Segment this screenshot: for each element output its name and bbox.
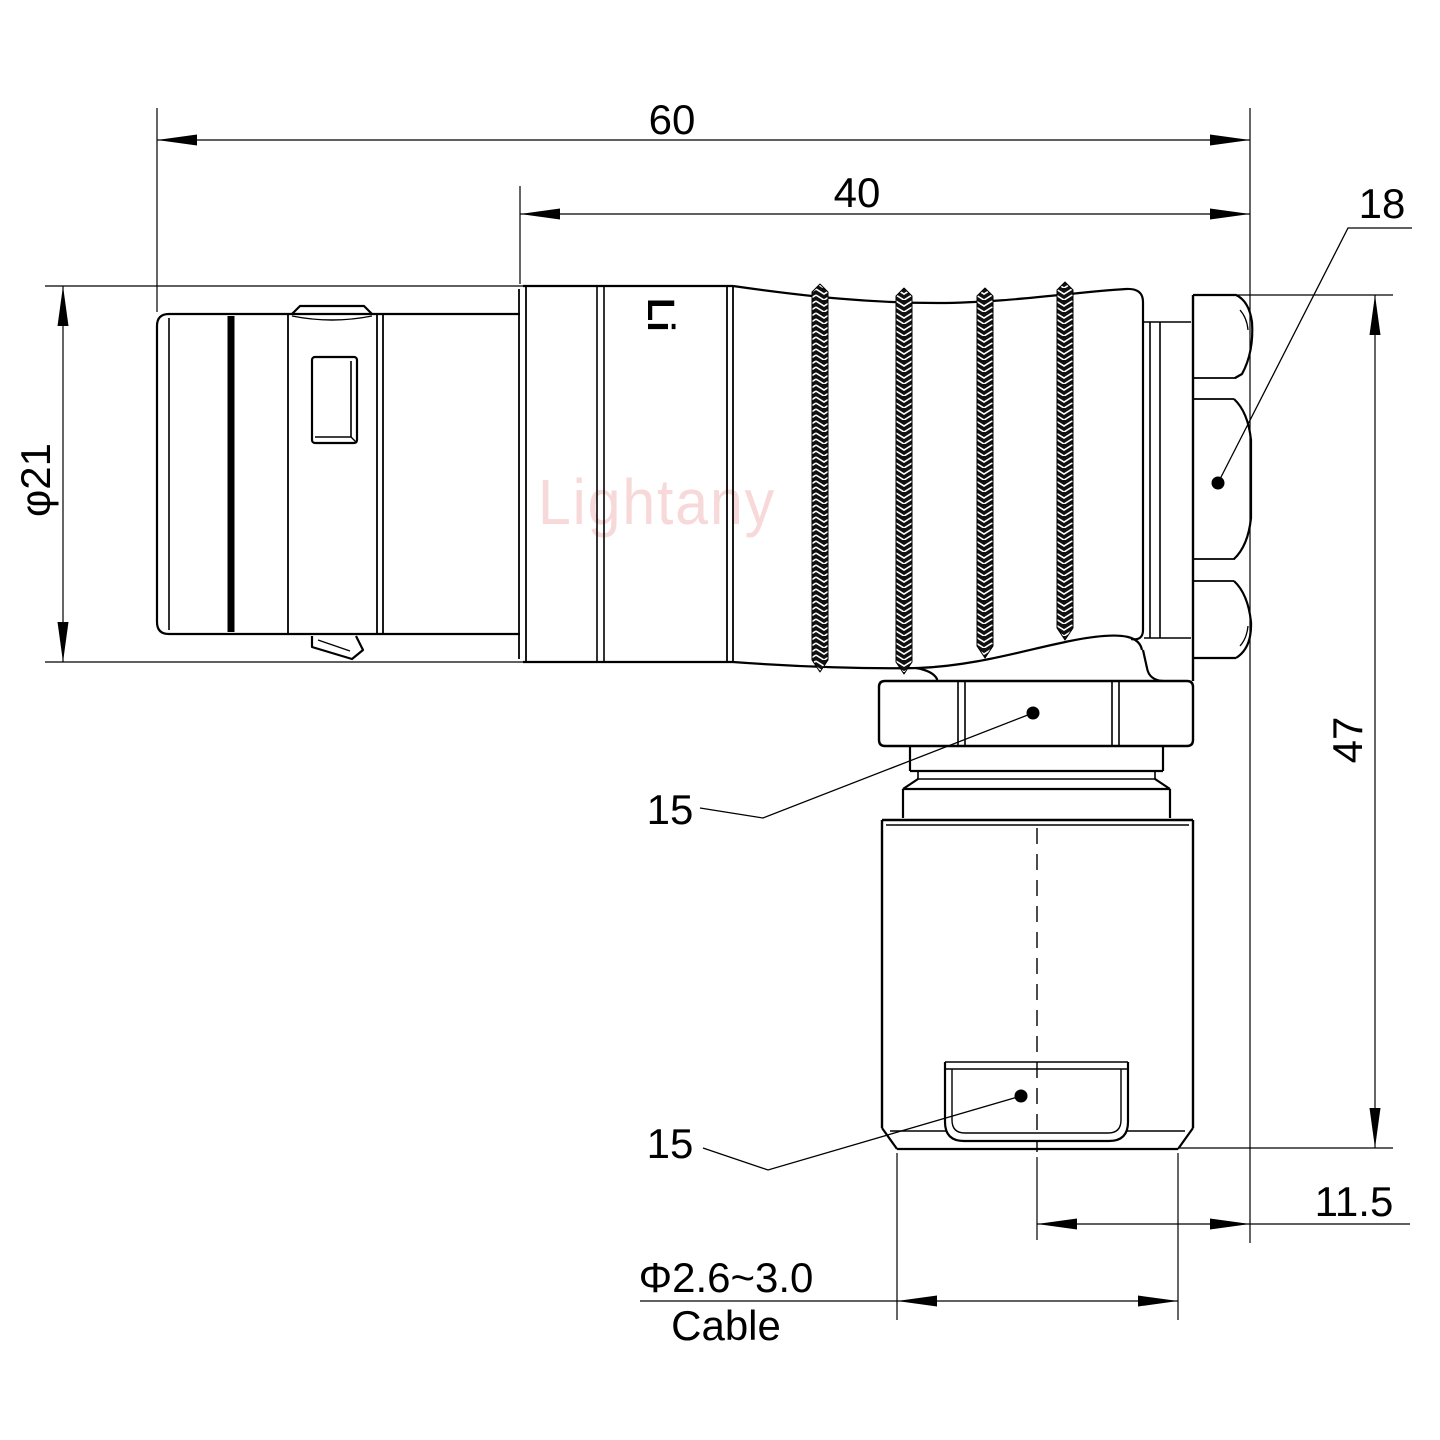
dimension-labels: 60 40 18 φ21 47 15 15 11.5 Φ2.6~3.0 Cabl… [12,96,1405,1349]
connector-drawing: Lightany [0,0,1440,1440]
leader-15-upper [700,713,1033,818]
dim-label-cable-word: Cable [671,1302,781,1349]
connector-part [157,282,1252,1152]
dimension-lines [45,108,1412,1320]
latch-tab [312,636,363,659]
dim-label-15-upper: 15 [647,786,694,833]
keyway-window [312,357,357,443]
leader-dot-18 [1212,477,1225,490]
collar-stack [903,746,1170,818]
gland-body [733,286,1191,681]
dim-label-18: 18 [1359,180,1406,227]
watermark-text: Lightany [538,466,776,538]
leader-18 [1218,228,1412,483]
back-nut [1193,295,1252,681]
knurl-band [812,284,828,672]
knurl-band [896,288,912,674]
dim-label-11-5: 11.5 [1315,1178,1394,1225]
dim-label-47: 47 [1324,717,1371,764]
dim-label-15-lower: 15 [647,1120,694,1167]
shell-logo-text: Lig [639,298,681,355]
key-lug [292,306,372,314]
drawing-page: Lightany [0,0,1440,1440]
leader-dot-15-upper [1027,707,1040,720]
front-sleeve [157,306,520,659]
knurl-band [1057,282,1073,640]
knurl-bands [812,282,1073,674]
leader-dot-15-lower [1015,1090,1028,1103]
shell-logo: Lig [639,298,681,355]
dim-label-cable-range: Φ2.6~3.0 [639,1254,814,1301]
dim-label-40: 40 [834,169,881,216]
knurl-band [977,288,993,658]
dim-label-60: 60 [649,96,696,143]
dim-label-dia21: φ21 [12,443,59,517]
